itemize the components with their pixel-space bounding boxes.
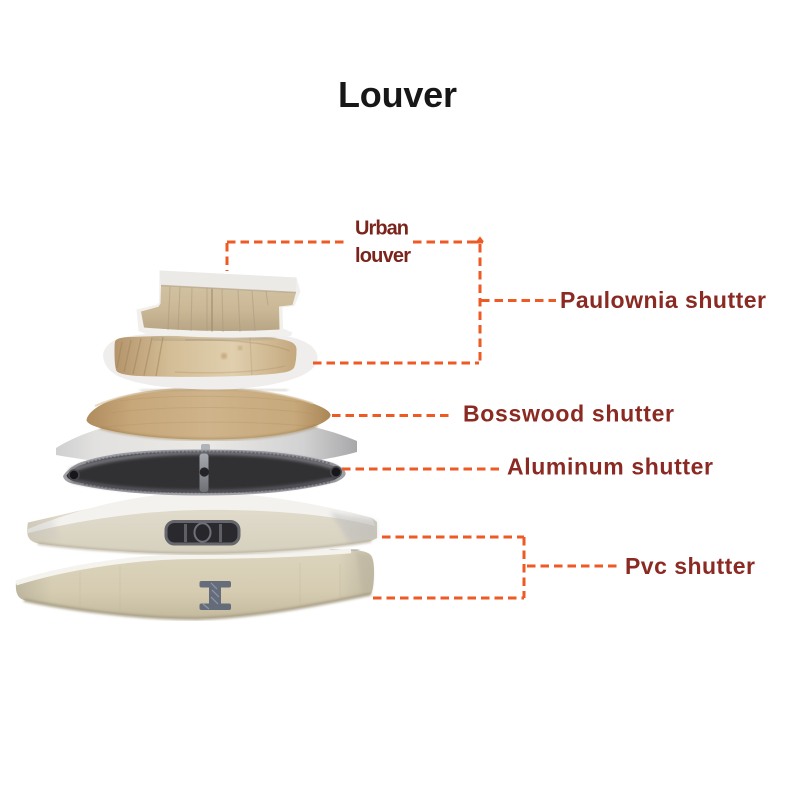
svg-text:Louver: Louver [338, 74, 457, 115]
svg-text:Paulownia shutter: Paulownia shutter [560, 287, 766, 313]
svg-text:Pvc shutter: Pvc shutter [625, 553, 755, 579]
svg-text:Urban: Urban [355, 218, 409, 240]
svg-text:Aluminum shutter: Aluminum shutter [507, 454, 713, 480]
svg-text:Bosswood shutter: Bosswood shutter [463, 401, 674, 427]
svg-text:louver: louver [355, 245, 411, 267]
